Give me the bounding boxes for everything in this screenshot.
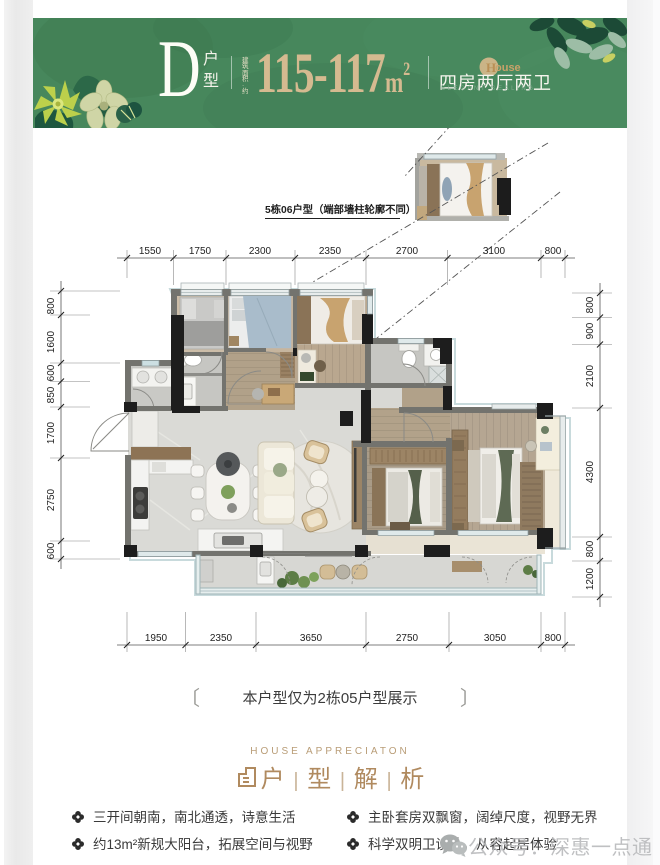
svg-text:600: 600 <box>46 542 57 559</box>
svg-text:800: 800 <box>545 633 562 644</box>
svg-text:3100: 3100 <box>483 246 506 257</box>
svg-text:800: 800 <box>46 297 57 314</box>
svg-text:800: 800 <box>585 540 596 557</box>
svg-text:800: 800 <box>585 296 596 313</box>
svg-text:2750: 2750 <box>46 488 57 511</box>
svg-text:5栋06户型（端部墙柱轮廓不同）: 5栋06户型（端部墙柱轮廓不同） <box>265 203 416 216</box>
svg-text:2350: 2350 <box>319 246 342 257</box>
svg-text:1700: 1700 <box>46 421 57 444</box>
svg-text:2700: 2700 <box>396 246 419 257</box>
svg-text:2750: 2750 <box>396 633 419 644</box>
svg-text:2350: 2350 <box>210 633 233 644</box>
svg-text:1950: 1950 <box>145 633 168 644</box>
svg-text:1750: 1750 <box>189 246 212 257</box>
svg-text:900: 900 <box>585 322 596 339</box>
svg-text:1600: 1600 <box>46 330 57 353</box>
svg-text:4300: 4300 <box>585 460 596 483</box>
svg-text:600: 600 <box>46 364 57 381</box>
svg-text:2300: 2300 <box>249 246 272 257</box>
svg-text:3050: 3050 <box>484 633 507 644</box>
svg-text:1200: 1200 <box>585 567 596 590</box>
svg-text:2100: 2100 <box>585 364 596 387</box>
svg-text:1550: 1550 <box>139 246 162 257</box>
svg-text:850: 850 <box>46 386 57 403</box>
svg-text:800: 800 <box>545 246 562 257</box>
svg-text:3650: 3650 <box>300 633 323 644</box>
